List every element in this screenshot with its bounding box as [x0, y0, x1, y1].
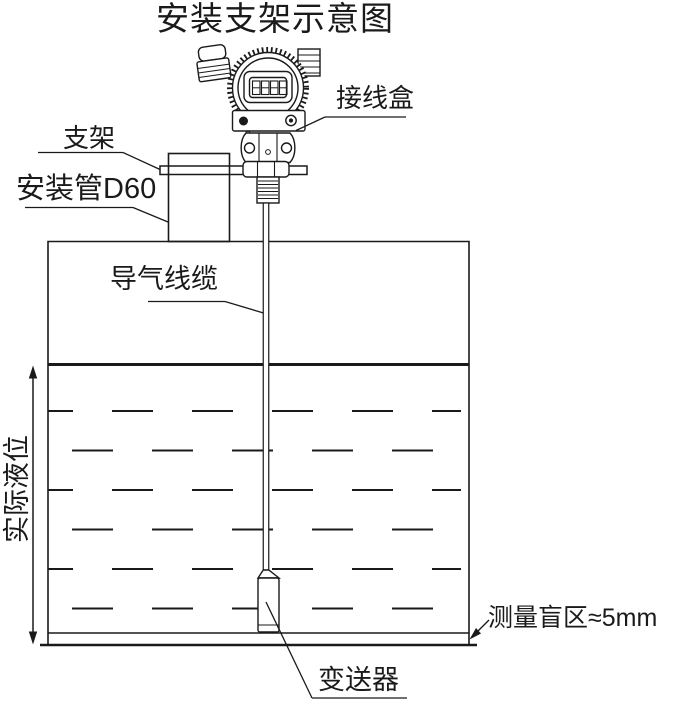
liquid-dashes	[48, 411, 461, 609]
bolt-dot-icon	[240, 117, 248, 125]
lcd-display-icon	[244, 72, 292, 103]
label-junction-box: 接线盒	[336, 84, 414, 113]
label-mounting-pipe: 安装管D60	[16, 174, 156, 206]
head-base	[233, 111, 306, 136]
label-bracket: 支架	[63, 124, 115, 153]
air-cable-line	[263, 203, 269, 570]
page-title: 安装支架示意图	[156, 1, 394, 37]
label-blind-zone: 测量盲区≈5mm	[488, 605, 657, 633]
cable-gland-icon	[195, 44, 231, 82]
hex-nut	[243, 162, 289, 178]
label-transmitter: 变送器	[318, 666, 399, 696]
arrow-up-icon	[29, 366, 37, 379]
transmitter-head	[195, 44, 320, 203]
threaded-stub	[257, 177, 279, 203]
label-air-cable: 导气线缆	[110, 265, 218, 295]
arrow-down-icon	[29, 632, 37, 645]
diagram-canvas: 安装支架示意图 接线盒 支架 安装管D60 导气线缆 实际液位 测量盲区≈5mm…	[0, 0, 700, 708]
process-connection	[241, 133, 295, 163]
label-actual-level: 实际液位	[3, 433, 33, 545]
